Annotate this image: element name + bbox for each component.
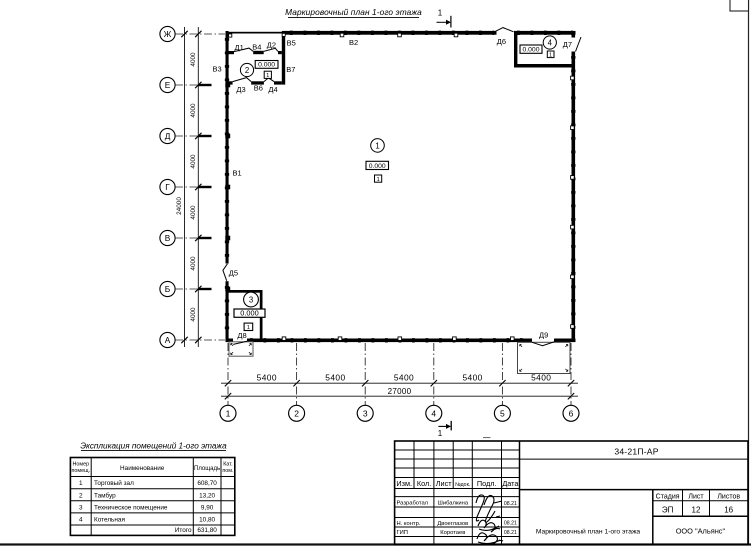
svg-text:2: 2: [79, 492, 83, 499]
svg-text:1: 1: [549, 53, 552, 59]
svg-text:0.000: 0.000: [258, 62, 275, 69]
svg-text:В7: В7: [286, 65, 295, 74]
svg-text:Д3: Д3: [236, 85, 245, 94]
svg-text:Двоеглазов: Двоеглазов: [437, 521, 468, 527]
svg-text:Лист: Лист: [688, 494, 704, 501]
svg-text:1: 1: [438, 9, 443, 18]
svg-text:6: 6: [569, 408, 574, 418]
svg-text:08.21: 08.21: [504, 501, 517, 507]
svg-text:1: 1: [376, 177, 379, 183]
svg-text:Ж: Ж: [164, 29, 172, 39]
svg-text:В2: В2: [349, 38, 358, 47]
svg-text:4000: 4000: [190, 103, 197, 118]
svg-text:Наименование: Наименование: [120, 465, 165, 472]
svg-text:08.21: 08.21: [504, 530, 517, 536]
svg-text:ЭП: ЭП: [662, 505, 674, 514]
svg-text:Д5: Д5: [229, 269, 238, 278]
svg-text:Д4: Д4: [268, 85, 277, 94]
svg-text:1: 1: [247, 325, 250, 331]
svg-text:Изм.: Изм.: [396, 479, 412, 488]
svg-text:Д8: Д8: [237, 331, 246, 340]
svg-text:Торговый зал: Торговый зал: [94, 479, 134, 487]
svg-text:Листов: Листов: [717, 494, 740, 501]
svg-text:Кат.: Кат.: [223, 462, 232, 468]
svg-text:Е: Е: [165, 80, 171, 90]
svg-text:Д7: Д7: [563, 40, 572, 49]
svg-text:5400: 5400: [325, 372, 345, 382]
svg-text:Лист: Лист: [436, 479, 453, 488]
svg-text:9,90: 9,90: [201, 504, 214, 511]
svg-text:4000: 4000: [190, 154, 197, 169]
svg-text:Коротаев: Коротаев: [440, 530, 465, 536]
svg-text:608,70: 608,70: [197, 480, 217, 487]
svg-text:Котельная: Котельная: [94, 517, 125, 524]
svg-text:В: В: [165, 233, 171, 243]
svg-text:В5: В5: [287, 39, 296, 48]
svg-text:10,80: 10,80: [199, 517, 215, 524]
svg-text:В1: В1: [233, 169, 242, 178]
svg-text:Экспликация помещений 1-ого эт: Экспликация помещений 1-ого этажа: [80, 441, 227, 450]
svg-text:Маркировочный план 1-ого этажа: Маркировочный план 1-ого этажа: [536, 527, 641, 535]
svg-text:1: 1: [375, 141, 379, 150]
svg-text:5400: 5400: [462, 372, 482, 382]
svg-text:631,80: 631,80: [197, 527, 217, 534]
svg-text:Площадь: Площадь: [194, 466, 220, 472]
svg-text:А: А: [165, 335, 171, 345]
svg-text:Подл.: Подл.: [477, 479, 497, 488]
svg-text:1: 1: [226, 408, 231, 418]
svg-text:Д2: Д2: [267, 41, 276, 50]
svg-text:ГИП: ГИП: [397, 530, 408, 536]
svg-text:В6: В6: [254, 84, 263, 93]
svg-text:Разработал: Разработал: [397, 501, 429, 507]
svg-text:№док.: №док.: [455, 482, 470, 488]
svg-text:Д9: Д9: [539, 330, 548, 339]
svg-text:16: 16: [724, 505, 733, 514]
svg-text:Д1: Д1: [235, 43, 244, 52]
svg-text:27000: 27000: [388, 387, 412, 396]
svg-text:пом.: пом.: [222, 468, 233, 474]
svg-text:Д: Д: [165, 131, 171, 141]
svg-text:08.21: 08.21: [504, 521, 517, 527]
svg-text:Д6: Д6: [497, 37, 506, 46]
svg-text:Н. контр.: Н. контр.: [397, 521, 421, 527]
svg-text:1: 1: [266, 73, 269, 79]
svg-text:Тамбур: Тамбур: [94, 491, 116, 499]
svg-text:24000: 24000: [176, 197, 183, 215]
svg-text:Г: Г: [165, 182, 170, 192]
svg-text:3: 3: [79, 504, 83, 511]
svg-text:4000: 4000: [190, 52, 197, 67]
svg-text:34-21П-АР: 34-21П-АР: [614, 447, 658, 457]
svg-text:13,20: 13,20: [199, 492, 215, 499]
svg-text:Стадия: Стадия: [656, 494, 680, 501]
svg-text:4000: 4000: [190, 307, 197, 322]
svg-text:ООО "Альянс": ООО "Альянс": [676, 526, 726, 535]
svg-text:помещ.: помещ.: [72, 468, 91, 474]
svg-text:2: 2: [294, 408, 299, 418]
svg-text:0.000: 0.000: [369, 163, 386, 170]
svg-text:4: 4: [79, 517, 83, 524]
svg-text:1: 1: [79, 480, 83, 487]
svg-text:4: 4: [431, 408, 436, 418]
svg-text:4000: 4000: [190, 205, 197, 220]
svg-text:5400: 5400: [394, 372, 414, 382]
svg-text:Маркировочный план 1-ого этажа: Маркировочный план 1-ого этажа: [285, 7, 422, 17]
svg-text:3: 3: [249, 295, 253, 304]
svg-text:5: 5: [500, 408, 505, 418]
svg-text:5400: 5400: [257, 372, 277, 382]
svg-text:В4: В4: [252, 43, 261, 52]
svg-text:0.000: 0.000: [522, 47, 539, 54]
svg-text:0.000: 0.000: [240, 309, 259, 318]
svg-text:Кол.: Кол.: [417, 479, 431, 488]
svg-text:Техническое помещение: Техническое помещение: [94, 504, 168, 511]
svg-text:3: 3: [363, 408, 368, 418]
svg-text:2: 2: [245, 66, 249, 75]
svg-text:Итого: Итого: [175, 527, 192, 534]
svg-text:12: 12: [692, 505, 701, 514]
svg-text:В3: В3: [213, 65, 222, 74]
svg-text:Б: Б: [165, 284, 171, 294]
svg-text:4000: 4000: [190, 256, 197, 271]
svg-text:Шибалкина: Шибалкина: [438, 501, 469, 507]
svg-text:1: 1: [438, 429, 443, 438]
svg-text:Номер: Номер: [73, 462, 90, 468]
svg-text:Дата: Дата: [502, 479, 519, 488]
svg-text:4: 4: [548, 38, 553, 47]
